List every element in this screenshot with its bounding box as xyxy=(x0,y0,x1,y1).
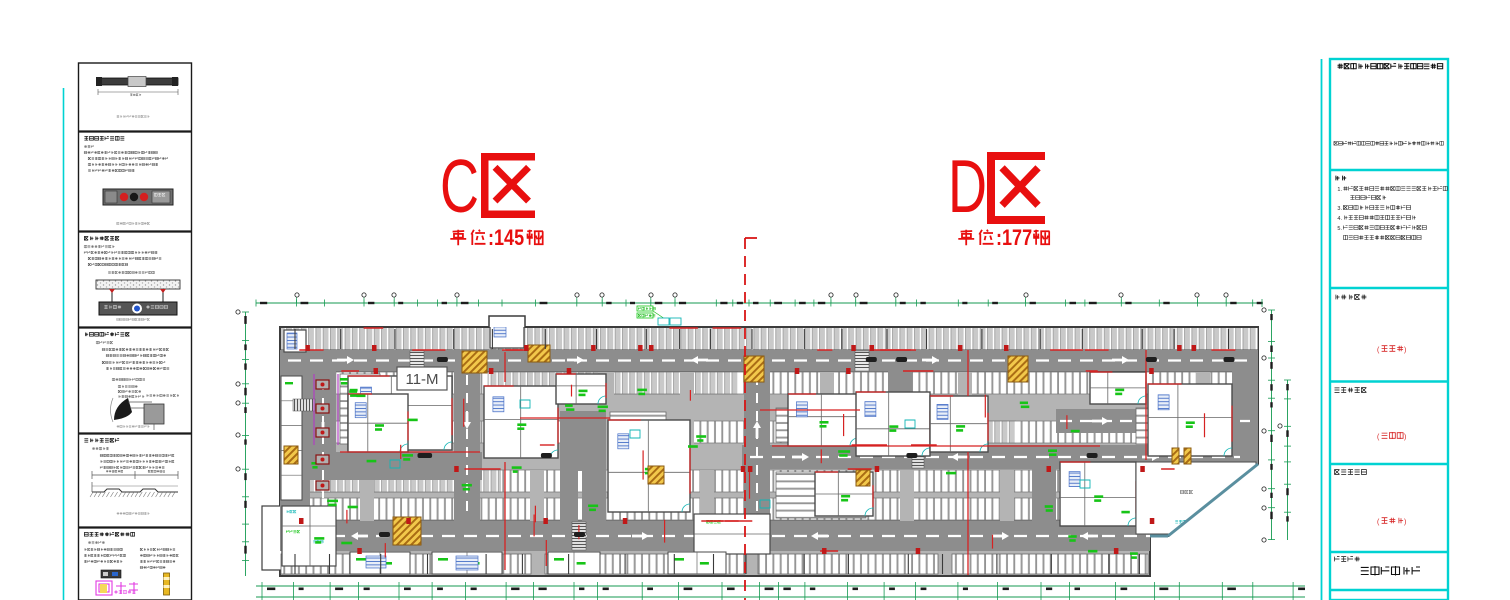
svg-text:): ) xyxy=(1404,347,1406,354)
svg-text::177: :177 xyxy=(996,226,1032,250)
svg-text:3.: 3. xyxy=(1337,206,1342,212)
svg-text:11-M: 11-M xyxy=(405,371,438,388)
svg-text:C: C xyxy=(440,144,479,228)
svg-text::145: :145 xyxy=(488,226,524,250)
svg-text:): ) xyxy=(1404,519,1406,526)
svg-text:): ) xyxy=(1404,434,1406,441)
svg-text:D: D xyxy=(948,144,987,228)
svg-text:1.: 1. xyxy=(1337,187,1342,193)
svg-text:4.: 4. xyxy=(1337,216,1342,222)
svg-text:5.: 5. xyxy=(1337,226,1342,232)
